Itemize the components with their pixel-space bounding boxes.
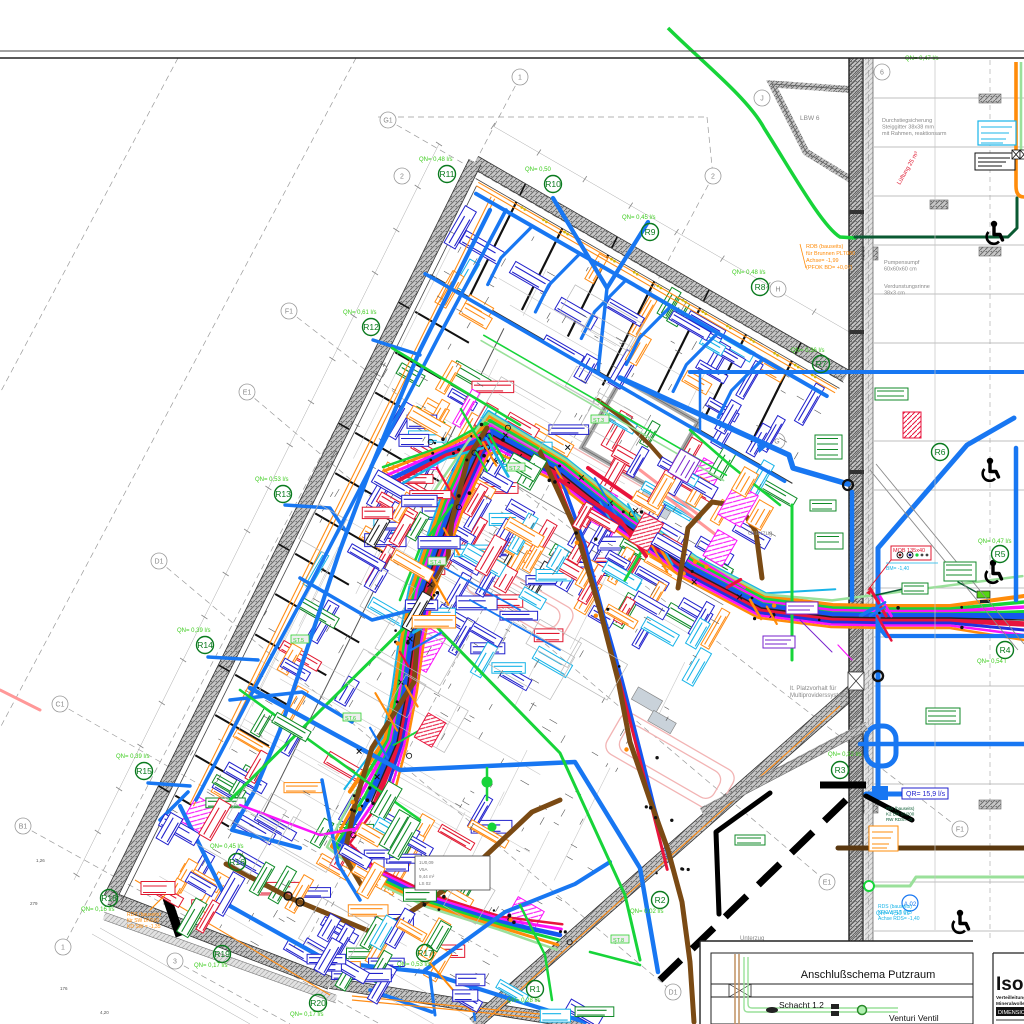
svg-text:RDB (bauseits): RDB (bauseits) — [806, 244, 843, 250]
svg-text:(PFOK BD= +0,07): (PFOK BD= +0,07) — [806, 265, 853, 271]
svg-text:6: 6 — [880, 70, 884, 77]
svg-text:R10: R10 — [545, 179, 561, 189]
svg-text:R13: R13 — [275, 489, 291, 499]
svg-text:38x3 cm: 38x3 cm — [884, 291, 905, 297]
svg-text:R16: R16 — [229, 857, 245, 867]
svg-text:9,44 m²: 9,44 m² — [419, 874, 435, 879]
svg-text:F1: F1 — [956, 827, 964, 834]
svg-text:ST.4: ST.4 — [430, 560, 441, 566]
svg-text:ST.6: ST.6 — [345, 716, 356, 722]
svg-text:R17: R17 — [417, 948, 433, 958]
svg-text:G1: G1 — [383, 118, 392, 125]
svg-text:Venturi Ventil: Venturi Ventil — [889, 1013, 939, 1023]
svg-text:2: 2 — [711, 174, 715, 181]
svg-text:QN= 0,53 l/s: QN= 0,53 l/s — [397, 962, 431, 968]
svg-text:QN= 0,17 l/s: QN= 0,17 l/s — [194, 963, 228, 969]
svg-text:QN= 0,47 l/s: QN= 0,47 l/s — [978, 539, 1012, 545]
svg-text:QN= 0,36 l/s: QN= 0,36 l/s — [791, 348, 825, 354]
svg-text:3: 3 — [173, 959, 177, 966]
svg-text:Pumpensumpf: Pumpensumpf — [884, 260, 920, 266]
svg-text:Mineralwolle n. DIN 180: Mineralwolle n. DIN 180 — [996, 1001, 1024, 1007]
svg-text:mit Rahmen, reaktionsarm: mit Rahmen, reaktionsarm — [882, 131, 947, 137]
svg-text:R4: R4 — [1000, 645, 1011, 655]
svg-text:R18: R18 — [101, 893, 117, 903]
svg-text:Unterzug: Unterzug — [748, 531, 772, 537]
svg-text:QN= 0,17 l/s: QN= 0,17 l/s — [290, 1012, 324, 1018]
svg-text:Anschlußschema Putzraum: Anschlußschema Putzraum — [801, 969, 936, 981]
svg-text:R5: R5 — [995, 549, 1006, 559]
svg-text:K2 DN SN200: K2 DN SN200 — [886, 812, 915, 817]
svg-text:279: 279 — [30, 901, 38, 906]
svg-text:QN= 0,02 l/s: QN= 0,02 l/s — [630, 909, 664, 915]
svg-text:R11: R11 — [440, 169, 455, 179]
svg-text:R12: R12 — [363, 322, 379, 332]
svg-text:QN= 0,53 l/s: QN= 0,53 l/s — [255, 477, 289, 483]
svg-text:D1: D1 — [669, 990, 678, 997]
svg-text:G: G — [774, 439, 779, 446]
svg-text:Durchstiegsicherung: Durchstiegsicherung — [882, 118, 932, 124]
svg-text:LBW 6: LBW 6 — [800, 115, 820, 122]
svg-text:QN= 0,39 l/s: QN= 0,39 l/s — [177, 628, 211, 634]
svg-text:1: 1 — [518, 75, 522, 82]
svg-text:QN= 0,45 l/s: QN= 0,45 l/s — [210, 844, 244, 850]
svg-text:QN= 0,32 l/s: QN= 0,32 l/s — [828, 752, 862, 758]
svg-text:QR= 4,50 l/s: QR= 4,50 l/s — [876, 911, 910, 917]
svg-text:QN= 0,48 l/s: QN= 0,48 l/s — [732, 270, 766, 276]
svg-text:H: H — [775, 287, 780, 294]
svg-text:KD SW = -1,35: KD SW = -1,35 — [127, 924, 161, 930]
svg-text:ST.2: ST.2 — [509, 466, 520, 472]
svg-text:LS 02: LS 02 — [419, 881, 431, 886]
svg-text:F1: F1 — [285, 309, 293, 316]
svg-text:J: J — [760, 96, 764, 103]
svg-text:1,26: 1,26 — [36, 858, 45, 863]
svg-text:QR= 15,9 l/s: QR= 15,9 l/s — [906, 791, 946, 798]
svg-text:R19: R19 — [214, 949, 230, 959]
svg-text:QN= 0,48 l/s: QN= 0,48 l/s — [419, 157, 453, 163]
svg-text:Multiproviderssystem: Multiproviderssystem — [790, 693, 846, 699]
svg-text:E1: E1 — [243, 390, 252, 397]
svg-text:R9: R9 — [645, 227, 656, 237]
svg-text:Steiggitter 38x38 mm: Steiggitter 38x38 mm — [882, 125, 934, 131]
svg-text:R6: R6 — [935, 447, 946, 457]
svg-text:Verteilleitungen für Heiz: Verteilleitungen für Heiz — [996, 995, 1024, 1001]
svg-text:R14: R14 — [197, 640, 213, 650]
svg-text:Isoli: Isoli — [996, 974, 1024, 995]
svg-text:D1: D1 — [155, 559, 164, 566]
svg-text:RW (bauseits): RW (bauseits) — [886, 806, 915, 811]
svg-text:B1: B1 — [19, 824, 28, 831]
svg-text:ST.5: ST.5 — [293, 638, 304, 644]
svg-text:QN= 0,39 l/s: QN= 0,39 l/s — [116, 754, 150, 760]
svg-text:R3: R3 — [835, 765, 846, 775]
svg-text:QN= 0,47 l/s: QN= 0,47 l/s — [905, 56, 939, 62]
svg-text:R15: R15 — [136, 766, 152, 776]
svg-text:1: 1 — [61, 945, 65, 952]
svg-text:ST.8: ST.8 — [613, 938, 624, 944]
svg-text:60x60x60 cm: 60x60x60 cm — [884, 267, 917, 273]
svg-text:QN= 0,61 l/s: QN= 0,61 l/s — [343, 310, 377, 316]
svg-text:DIMENSION: DIMENSION — [998, 1010, 1024, 1016]
svg-text:R20: R20 — [310, 998, 326, 1008]
svg-text:R7: R7 — [816, 359, 827, 369]
svg-text:Schacht 1.2: Schacht 1.2 — [779, 1000, 824, 1010]
svg-text:BM= -1,40: BM= -1,40 — [886, 566, 909, 572]
svg-text:176: 176 — [60, 986, 68, 991]
svg-text:E1: E1 — [823, 880, 832, 887]
svg-text:QN= 0,50: QN= 0,50 — [525, 167, 552, 173]
svg-text:für Brunnen PLT080: für Brunnen PLT080 — [806, 251, 855, 257]
svg-text:QN= 0,54 l: QN= 0,54 l — [977, 659, 1006, 665]
svg-text:ST.3: ST.3 — [593, 418, 604, 424]
svg-text:C1: C1 — [56, 702, 65, 709]
svg-text:4,20: 4,20 — [100, 1010, 109, 1015]
svg-text:2: 2 — [400, 174, 404, 181]
svg-text:RW RDS= -0: RW RDS= -0 — [886, 817, 913, 822]
svg-text:Verdunstungsrinne: Verdunstungsrinne — [884, 284, 930, 290]
svg-text:V5A: V5A — [419, 867, 428, 872]
svg-text:QN= 0,16 l/s: QN= 0,16 l/s — [81, 907, 115, 913]
svg-text:1U0,09: 1U0,09 — [419, 860, 434, 865]
svg-text:Achse= -1,99: Achse= -1,99 — [806, 258, 839, 264]
svg-text:QN= 0,45 l/s: QN= 0,45 l/s — [622, 215, 656, 221]
svg-text:R1: R1 — [530, 984, 541, 994]
svg-text:QN= 0,28 l/s: QN= 0,28 l/s — [507, 998, 541, 1004]
svg-text:R2: R2 — [655, 895, 666, 905]
svg-text:R8: R8 — [755, 282, 766, 292]
svg-text:lt. Platzvorhalt für: lt. Platzvorhalt für — [790, 686, 836, 692]
